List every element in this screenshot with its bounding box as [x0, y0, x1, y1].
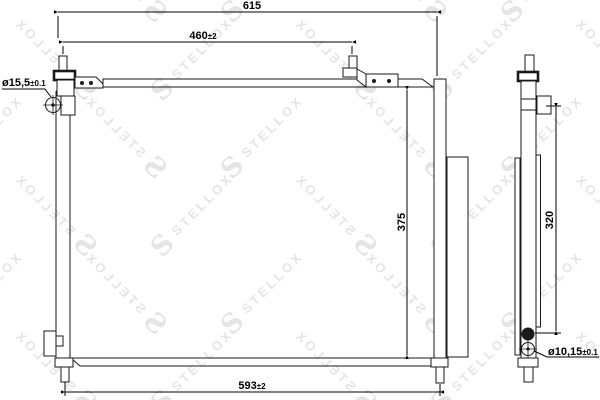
- dim-overall-width: 615: [58, 0, 437, 76]
- dim-label-overall-width: 615: [243, 0, 261, 12]
- dim-label-receiver-drier-height: 320: [544, 211, 556, 229]
- side-plate-left: [515, 158, 520, 355]
- bracket-hole: [387, 79, 391, 83]
- right-top-mount-pin: [349, 56, 357, 69]
- left-top-mount-pin: [59, 56, 67, 71]
- top-right-mount-bracket: [343, 56, 398, 87]
- side-bottom-pin: [524, 367, 533, 382]
- upper-port-dot-icon: [522, 328, 535, 341]
- dim-mount-span-bottom: 593±2: [65, 380, 440, 396]
- condenser-dimension-drawing: 615 460±2 ø15,5±0.1 375 320: [0, 0, 600, 400]
- left-side-mount-tab: [44, 331, 63, 356]
- bracket-hole: [372, 79, 376, 83]
- dim-label-inlet-port: ø15,5±0.1: [2, 77, 46, 89]
- dim-outlet-port-diameter: ø10,15±0.1: [534, 346, 599, 358]
- side-top-pin: [525, 55, 534, 72]
- dim-core-height: 375: [396, 90, 408, 355]
- left-bottom-mount-pin: [61, 367, 69, 382]
- dim-label-mount-span-top: 460±2: [189, 30, 217, 42]
- dim-label-outlet-port: ø10,15±0.1: [548, 346, 598, 358]
- side-block: [537, 96, 551, 114]
- dim-mount-span-top: 460±2: [63, 30, 352, 54]
- right-shroud-plate: [447, 157, 468, 357]
- right-tank: [431, 79, 468, 383]
- side-collar: [518, 72, 538, 81]
- dim-label-core-height: 375: [396, 213, 408, 231]
- right-bottom-mount-pin: [436, 367, 444, 383]
- technical-drawing-page: SSTELLOXSSTELLOXSSTELLOXSSTELLOXSSTELLOX…: [0, 0, 600, 400]
- core-body: [70, 79, 434, 366]
- side-plate-right: [536, 155, 541, 327]
- top-left-mount-bracket: [54, 56, 103, 96]
- inlet-port: [43, 95, 75, 115]
- dim-inlet-port-diameter: ø15,5±0.1: [2, 77, 51, 97]
- bracket-hole: [89, 81, 93, 85]
- dim-label-mount-span-bottom: 593±2: [238, 380, 266, 392]
- bracket-hole: [80, 81, 84, 85]
